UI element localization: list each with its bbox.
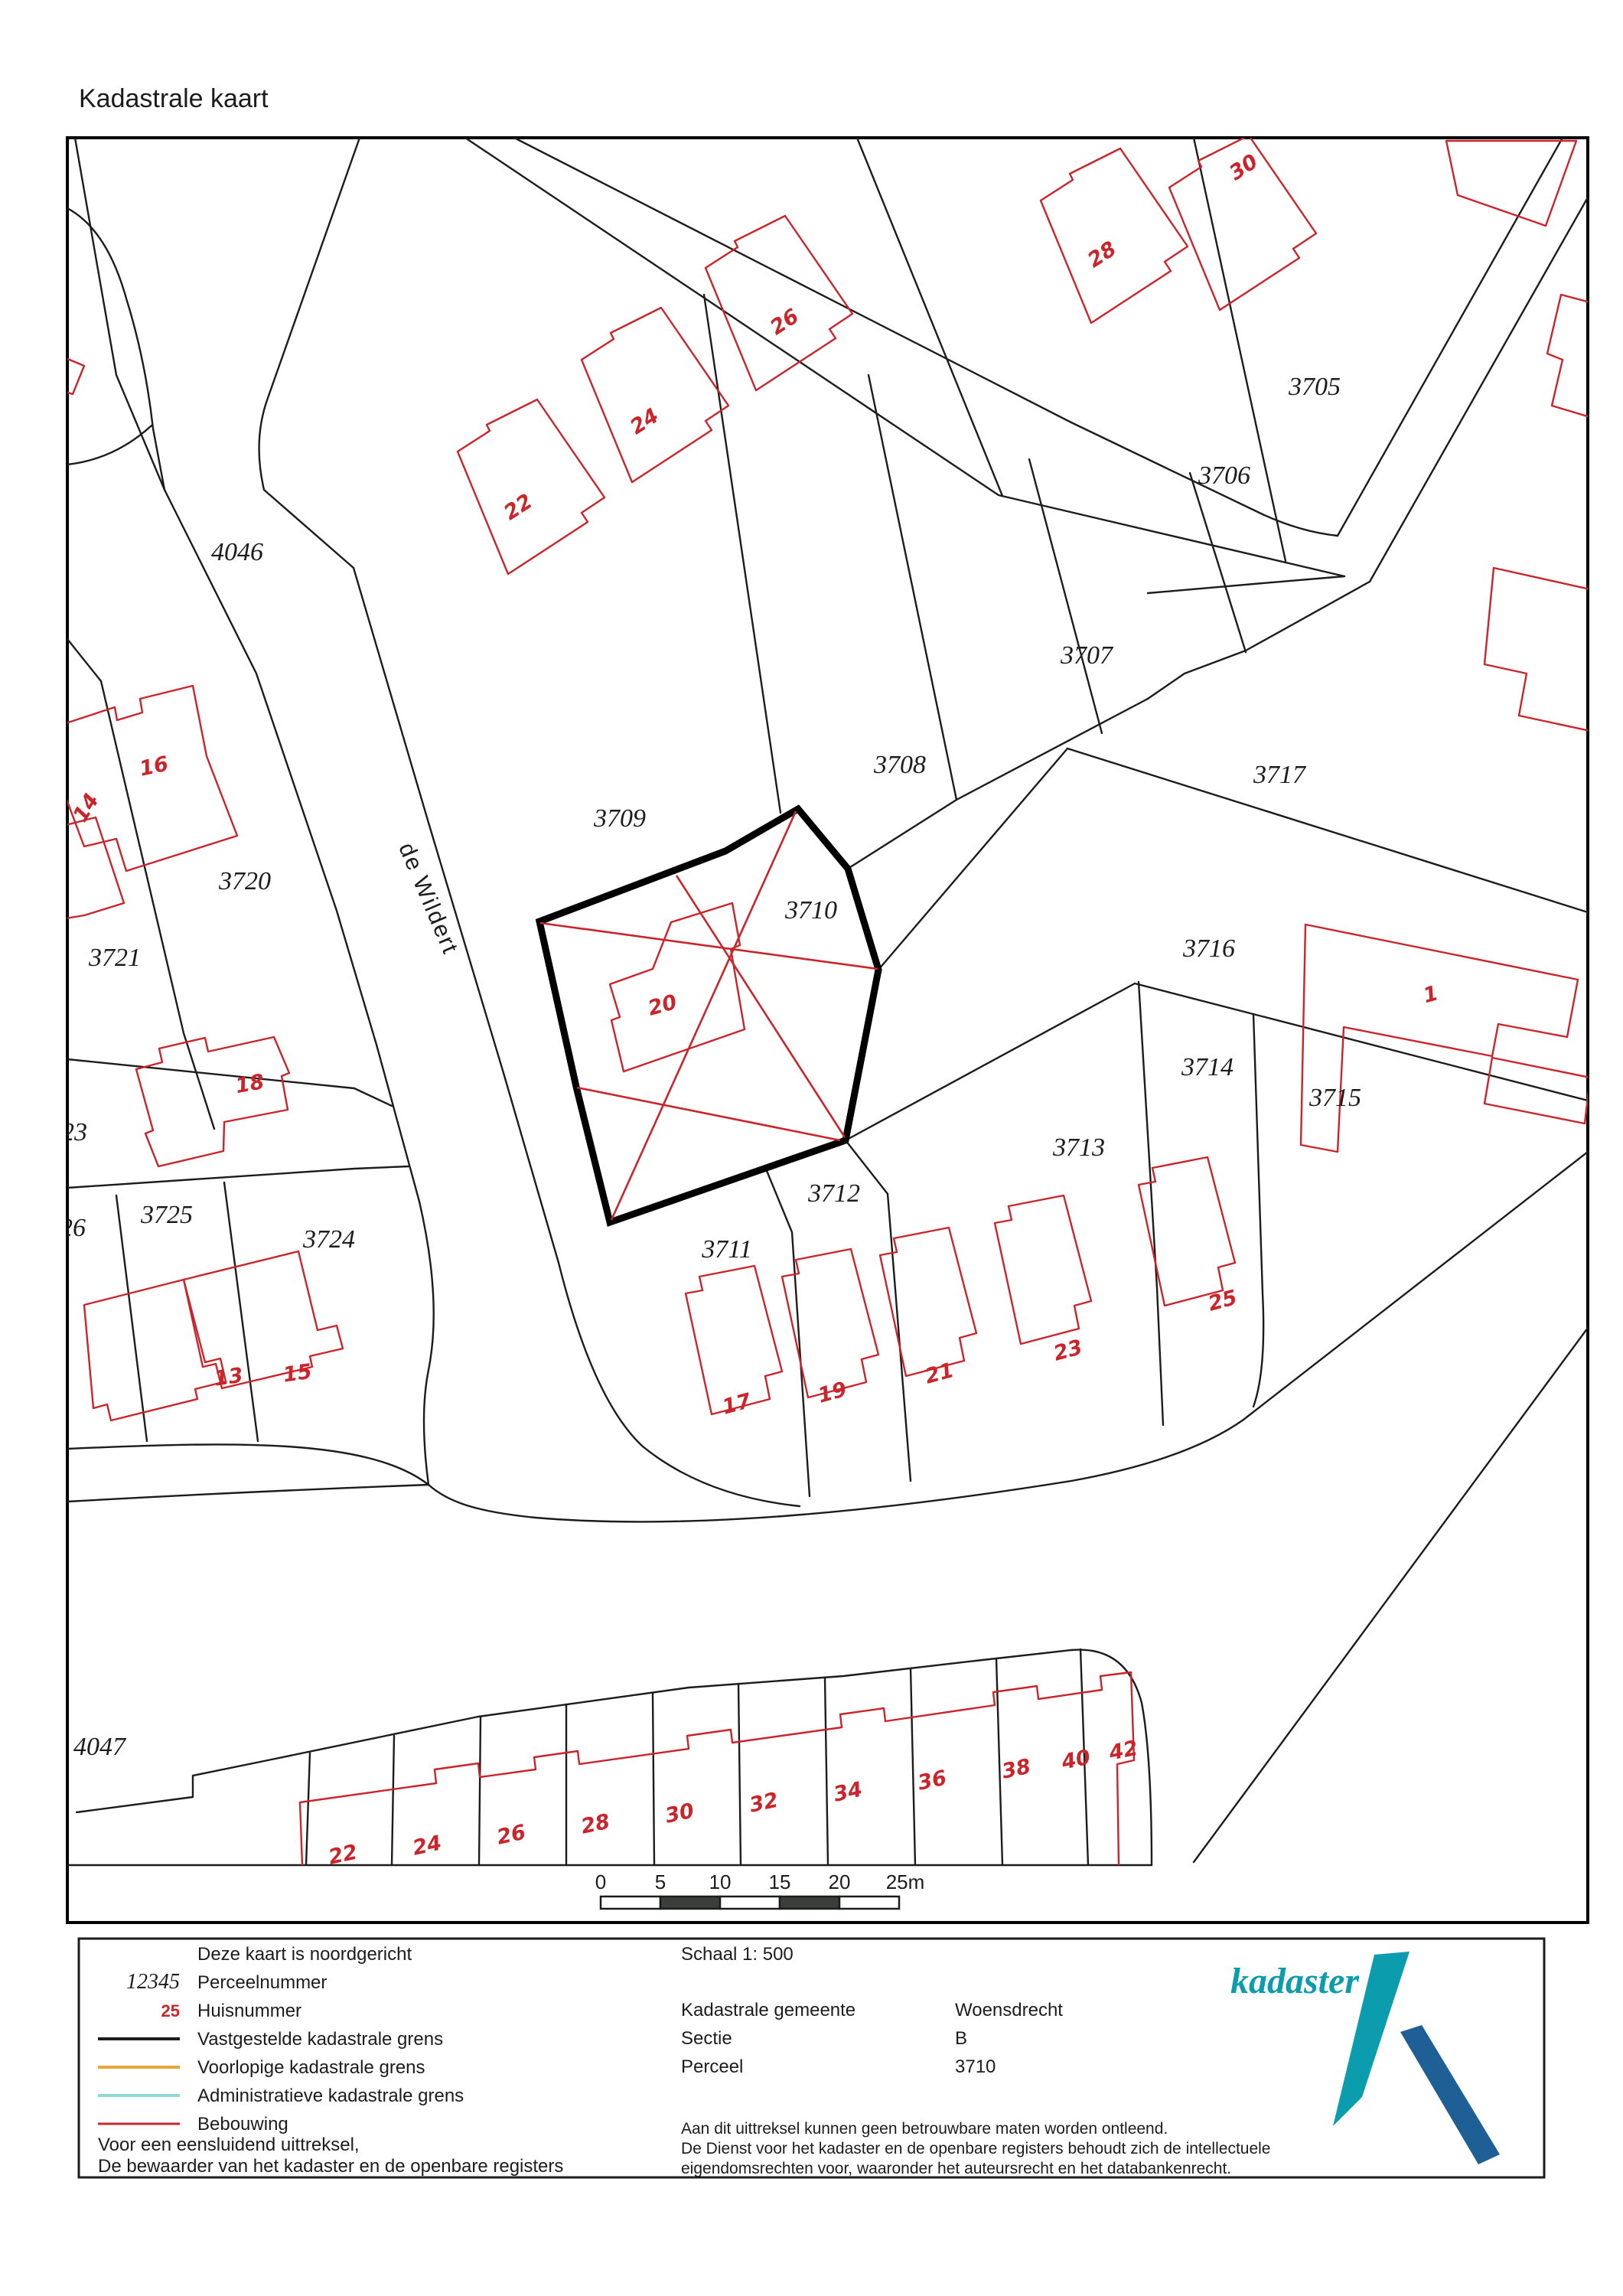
legend-item-label: Bebouwing <box>197 2114 288 2135</box>
parcel-label: 3725 <box>140 1201 193 1229</box>
house-number-label: 13 <box>213 1364 245 1391</box>
parcel-label: 3713 <box>1052 1133 1105 1162</box>
legend-item-label: Administratieve kadastrale grens <box>197 2086 464 2106</box>
scale-bar-label: 15 <box>769 1870 791 1893</box>
scale-bar-label: 25m <box>886 1870 925 1893</box>
legend-footer-1: Voor een eensluidend uittreksel, <box>98 2135 360 2155</box>
scale-bar-segment <box>601 1896 660 1909</box>
scale-bar-label: 0 <box>595 1870 606 1893</box>
parcel-label: 3721 <box>88 944 141 972</box>
parcel-label: 3706 <box>1198 461 1250 490</box>
parcel-label: 3705 <box>1288 373 1341 401</box>
parcel-label: 3723 <box>34 1118 87 1146</box>
legend: Deze kaart is noordgericht 12345Perceeln… <box>79 1939 1544 2177</box>
parcel-label: 3709 <box>593 804 646 833</box>
legend-field-label: Perceel <box>681 2056 743 2077</box>
parcel-label: 3717 <box>1253 761 1307 789</box>
house-number-label: 18 <box>233 1070 266 1098</box>
house-number-label: 15 <box>282 1360 314 1388</box>
scale-bar-segment <box>720 1896 780 1909</box>
parcel-label: 3714 <box>1181 1053 1234 1081</box>
legend-footer-2: De bewaarder van het kadaster en de open… <box>98 2156 563 2177</box>
parcel-label: 3715 <box>1309 1084 1361 1112</box>
parcel-label: 3710 <box>784 896 837 925</box>
scale-bar-segment <box>839 1896 899 1909</box>
legend-field-value: 3710 <box>955 2056 996 2077</box>
legend-field-value: Woensdrecht <box>955 2000 1063 2020</box>
legend-field-label: Sectie <box>681 2028 732 2049</box>
parcel-label: 4047 <box>73 1733 127 1761</box>
legend-item-label: Perceelnummer <box>197 1972 327 1993</box>
parcel-label: 3712 <box>807 1179 860 1208</box>
parcel-label: 3708 <box>873 751 926 779</box>
scale-bar-label: 5 <box>655 1870 666 1893</box>
legend-north-note: Deze kaart is noordgericht <box>197 1944 412 1965</box>
scale-bar-segment <box>780 1896 839 1909</box>
legend-field-value: B <box>955 2028 967 2049</box>
cadastral-extract-page: Kadastrale kaart <box>0 0 1623 2296</box>
parcel-label: 3720 <box>218 867 271 895</box>
legend-item-label: Voorlopige kadastrale grens <box>197 2057 425 2078</box>
page-title: Kadastrale kaart <box>79 84 269 113</box>
parcel-label: 3716 <box>1182 934 1235 963</box>
legend-sample: 12345 <box>126 1970 180 1994</box>
scale-bar-label: 10 <box>709 1870 732 1893</box>
legend-item-label: Vastgestelde kadastrale grens <box>197 2029 443 2050</box>
parcel-label: 4046 <box>211 538 263 566</box>
kadaster-logo-text: kadaster <box>1230 1961 1360 2001</box>
legend-disclaimer-line: eigendomsrechten voor, waaronder het aut… <box>681 2160 1231 2177</box>
parcel-label: 3707 <box>1060 641 1114 670</box>
legend-scale: Schaal 1: 500 <box>681 1944 794 1965</box>
parcel-label: 3724 <box>302 1225 355 1254</box>
legend-field-label: Kadastrale gemeente <box>681 2000 855 2020</box>
legend-disclaimer-line: De Dienst voor het kadaster en de openba… <box>681 2140 1270 2157</box>
legend-sample: 25 <box>161 2001 180 2020</box>
legend-item-label: Huisnummer <box>197 2001 301 2021</box>
cadastral-map-svg: Kadastrale kaart <box>0 0 1623 2296</box>
scale-bar-label: 20 <box>829 1870 851 1893</box>
parcel-label: 3726 <box>33 1214 86 1242</box>
parcel-label: 3711 <box>701 1235 751 1264</box>
legend-disclaimer-line: Aan dit uittreksel kunnen geen betrouwba… <box>681 2120 1168 2138</box>
scale-bar-segment <box>660 1896 720 1909</box>
